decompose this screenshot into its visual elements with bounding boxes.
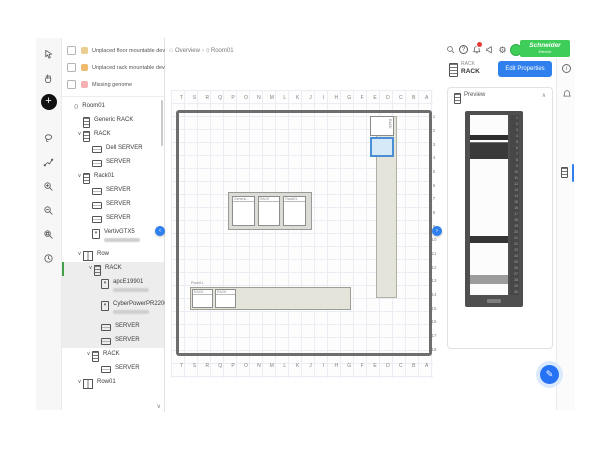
collapse-inspector-handle[interactable]: › xyxy=(432,226,442,236)
rack-icon xyxy=(83,131,90,142)
device-icon xyxy=(92,229,100,239)
rack-cell[interactable]: Rack01 xyxy=(283,196,306,226)
tree-item-dell-server[interactable]: Dell SERVER xyxy=(62,142,164,156)
tree-item-label: Room01 xyxy=(82,102,105,110)
rack-cell[interactable]: RACK xyxy=(258,196,281,226)
filter-row: Unplaced rack mountable devices xyxy=(62,59,164,76)
active-tab-indicator xyxy=(572,164,574,182)
checkbox[interactable] xyxy=(67,80,76,89)
chevron-down-icon[interactable]: ∨ xyxy=(85,350,92,358)
inspector-header: RACK RACK Edit Properties xyxy=(445,58,555,82)
tree-item-server[interactable]: SERVER xyxy=(62,198,164,212)
room-icon: ⟨⟩ xyxy=(74,103,78,111)
info-icon: i xyxy=(562,64,571,73)
chevron-down-icon[interactable]: ∨ xyxy=(76,130,83,138)
row-icon xyxy=(83,251,93,261)
server-icon xyxy=(92,146,102,153)
tree-item-label: Row01 xyxy=(97,378,116,386)
rack-icon xyxy=(92,351,99,362)
server-icon xyxy=(92,216,102,223)
notification-badge xyxy=(476,41,483,48)
rack-group[interactable]: Generic...RACKRack01 xyxy=(228,192,312,230)
tree-item-apce19901[interactable]: apcE19901 xyxy=(62,276,164,298)
chevron-left-icon: ‹ xyxy=(159,228,161,234)
tree-item-label: VertivGTX5 xyxy=(104,228,140,236)
breadcrumb-overview[interactable]: Overview xyxy=(175,48,200,54)
tree-item-rack[interactable]: ∨RACK xyxy=(62,262,164,276)
rack-cell[interactable]: RACK xyxy=(215,289,236,308)
rack-icon xyxy=(83,117,90,128)
filter-label: Unplaced rack mountable devices xyxy=(92,65,175,71)
help-button[interactable]: ? xyxy=(457,43,470,56)
rack-interior xyxy=(470,115,508,295)
edit-properties-button[interactable]: Edit Properties xyxy=(498,61,552,77)
server-unit[interactable] xyxy=(470,236,508,243)
server-icon xyxy=(92,188,102,195)
room-icon: ⟨⟩ xyxy=(206,48,209,54)
chevron-down-icon[interactable]: ∨ xyxy=(76,378,83,386)
rack-cell-label: RACK xyxy=(193,290,212,295)
inspector-panel: RACK RACK Edit Properties Preview ∧ 1234… xyxy=(445,58,555,354)
collapse-tree-handle[interactable]: ‹ xyxy=(155,226,165,236)
lasso-select-button[interactable] xyxy=(40,129,58,147)
device-icon xyxy=(101,301,109,311)
rack-cell[interactable]: RACK xyxy=(192,289,213,308)
history-button[interactable] xyxy=(40,249,58,267)
feedback-button[interactable] xyxy=(483,43,496,56)
tree-item-label: RACK xyxy=(103,350,120,358)
tree-item-label: Dell SERVER xyxy=(106,144,143,152)
tree-item-server[interactable]: SERVER xyxy=(62,334,164,348)
gear-icon: ⚙ xyxy=(498,45,506,55)
settings-button[interactable]: ⚙ xyxy=(496,43,509,56)
tree-item-label: SERVER xyxy=(106,158,131,166)
column-letters-top: TSRQPONMLKJIHGFEDCBA xyxy=(175,94,433,102)
info-button[interactable]: i xyxy=(561,63,572,74)
rack-icon xyxy=(449,63,458,77)
tree-item-label: Row xyxy=(97,250,109,258)
device-tree: ⟨⟩Room01Generic RACK∨RACKDell SERVERSERV… xyxy=(62,97,164,390)
checkbox[interactable] xyxy=(67,46,76,55)
scroll-down-icon: ∨ xyxy=(157,403,161,410)
tree-item-generic-rack[interactable]: Generic RACK xyxy=(62,114,164,128)
tree-item-label: SERVER xyxy=(115,322,140,330)
genome-icon xyxy=(81,81,88,88)
checkbox[interactable] xyxy=(67,63,76,72)
server-icon xyxy=(92,202,102,209)
tree-item-label: SERVER xyxy=(115,336,140,344)
ups-unit[interactable] xyxy=(470,142,508,159)
help-icon: ? xyxy=(459,45,468,54)
chevron-right-icon: › xyxy=(436,228,438,234)
preview-label: Preview xyxy=(464,92,485,98)
rack-cell-selected[interactable] xyxy=(370,137,394,157)
tree-item-label: RACK xyxy=(105,264,122,272)
tree-item-server[interactable]: SERVER xyxy=(62,184,164,198)
tree-item-label: RACK xyxy=(94,130,111,138)
column-letters-bottom: TSRQPONMLKJIHGFEDCBA xyxy=(175,362,433,370)
tree-item-subtitle xyxy=(113,288,149,292)
schneider-logo: Schneider Electric xyxy=(520,40,570,57)
rack-cell-label: RACK xyxy=(259,197,280,202)
server-icon xyxy=(101,366,111,373)
breadcrumb-current: Room01 xyxy=(211,48,234,54)
tree-item-subtitle xyxy=(113,310,149,314)
pan-tool-button[interactable] xyxy=(40,69,58,87)
row-label: Row01 xyxy=(191,280,203,285)
floor-device-icon xyxy=(81,47,88,54)
chevron-down-icon[interactable]: ∨ xyxy=(76,250,83,258)
device-tree-panel: Unplaced floor mountable devicesUnplaced… xyxy=(62,38,165,412)
breadcrumb-separator: › xyxy=(202,48,204,54)
draw-route-button[interactable] xyxy=(40,153,58,171)
rack-u-scale: 1234567891011121314151617181920212223242… xyxy=(510,115,519,295)
tree-item-label: SERVER xyxy=(106,186,131,194)
rack-icon xyxy=(561,167,568,178)
rack-elevation-preview[interactable]: 1234567891011121314151617181920212223242… xyxy=(465,111,523,307)
server-unit[interactable] xyxy=(470,135,508,140)
filter-label: Missing genome xyxy=(92,82,132,88)
select-tool-button[interactable] xyxy=(40,45,58,63)
chevron-down-icon[interactable]: ∨ xyxy=(76,172,83,180)
tree-item-label: CyberPowerPR2200R... xyxy=(113,300,164,308)
tree-item-cyberpowerpr2200r-[interactable]: CyberPowerPR2200R... xyxy=(62,298,164,320)
tree-item-vertivgtx5[interactable]: VertivGTX5 xyxy=(62,226,164,248)
rack-cell-label: RACK xyxy=(216,290,235,295)
rack-icon xyxy=(454,93,461,104)
alarm-bell-icon xyxy=(562,89,572,99)
tree-item-label: SERVER xyxy=(106,200,131,208)
zoom-out-button[interactable] xyxy=(40,201,58,219)
floor-canvas[interactable]: ⌂ Overview › ⟨⟩ Room01 TSRQPONMLKJIHGFED… xyxy=(165,38,445,410)
tree-item-rack[interactable]: ∨RACK xyxy=(62,348,164,362)
brand-line2: Electric xyxy=(520,50,570,54)
tree-item-server[interactable]: SERVER xyxy=(62,212,164,226)
tree-item-label: SERVER xyxy=(115,364,140,372)
zoom-reset-button[interactable] xyxy=(40,225,58,243)
collapse-preview-icon[interactable]: ∧ xyxy=(542,92,546,99)
tree-item-label: Generic RACK xyxy=(94,116,133,124)
search-icon xyxy=(446,45,456,55)
filter-row: Unplaced floor mountable devices xyxy=(62,42,164,59)
rack-cell-label: Rack01 xyxy=(284,197,305,202)
notifications-button[interactable] xyxy=(470,43,483,56)
app-root: + Unplaced floor mountable devicesUnplac… xyxy=(0,0,600,450)
u-tick: 30 xyxy=(510,289,519,295)
megaphone-icon xyxy=(485,45,495,55)
header-actions: ? ⚙ xyxy=(444,43,522,56)
filter-label: Unplaced floor mountable devices xyxy=(92,48,175,54)
rack-cell[interactable]: RACK xyxy=(370,116,394,136)
rack-preview-tab[interactable] xyxy=(561,166,572,177)
left-toolbar: + xyxy=(36,38,62,410)
tree-item-label: Rack01 xyxy=(94,172,114,180)
chevron-down-icon[interactable]: ∨ xyxy=(87,264,94,272)
row-icon xyxy=(83,379,93,389)
add-device-button[interactable]: + xyxy=(41,94,57,110)
right-rail: i xyxy=(556,58,575,410)
rack-cell-label: RACK xyxy=(388,119,392,129)
tree-scrollbar[interactable] xyxy=(161,100,164,146)
tree-item-rack[interactable]: ∨RACK xyxy=(62,128,164,142)
tree-item-row01[interactable]: ∨Row01 xyxy=(62,376,164,390)
server-icon xyxy=(101,338,111,345)
preview-card: Preview ∧ 123456789101112131415161718192… xyxy=(447,87,553,349)
device-icon xyxy=(101,279,109,289)
tree-item-rack01[interactable]: ∨Rack01 xyxy=(62,170,164,184)
selected-type: RACK xyxy=(461,61,475,67)
search-button[interactable] xyxy=(444,43,457,56)
rack-footer-label xyxy=(487,299,501,303)
plus-icon: + xyxy=(45,95,51,107)
assistant-fab[interactable]: ✎ xyxy=(536,361,563,388)
home-icon: ⌂ xyxy=(169,47,173,54)
row-horizontal[interactable]: RACKRACK xyxy=(190,287,351,310)
shelf-unit[interactable] xyxy=(470,275,508,284)
filter-list: Unplaced floor mountable devicesUnplaced… xyxy=(62,38,164,97)
alarms-button[interactable] xyxy=(561,88,572,99)
rack-icon xyxy=(94,265,101,276)
tree-item-row[interactable]: ∨Row xyxy=(62,248,164,262)
filter-row: Missing genome xyxy=(62,76,164,93)
breadcrumb: ⌂ Overview › ⟨⟩ Room01 xyxy=(169,47,236,54)
tree-item-server[interactable]: SERVER xyxy=(62,156,164,170)
rack-cell-label: Generic... xyxy=(233,197,254,202)
zoom-in-button[interactable] xyxy=(40,177,58,195)
tree-item-server[interactable]: SERVER xyxy=(62,320,164,334)
pencil-icon: ✎ xyxy=(546,369,554,379)
rack-device-icon xyxy=(81,64,88,71)
rack-cell[interactable]: Generic... xyxy=(232,196,255,226)
server-icon xyxy=(92,160,102,167)
selected-title: RACK xyxy=(461,68,480,75)
preview-header: Preview ∧ xyxy=(448,88,552,104)
tree-item-label: SERVER xyxy=(106,214,131,222)
rack-icon xyxy=(83,173,90,184)
tree-item-label: apcE19901 xyxy=(113,278,149,286)
tree-item-room01[interactable]: ⟨⟩Room01 xyxy=(62,100,164,114)
tree-item-server[interactable]: SERVER xyxy=(62,362,164,376)
server-icon xyxy=(101,324,111,331)
tree-item-subtitle xyxy=(104,238,140,242)
